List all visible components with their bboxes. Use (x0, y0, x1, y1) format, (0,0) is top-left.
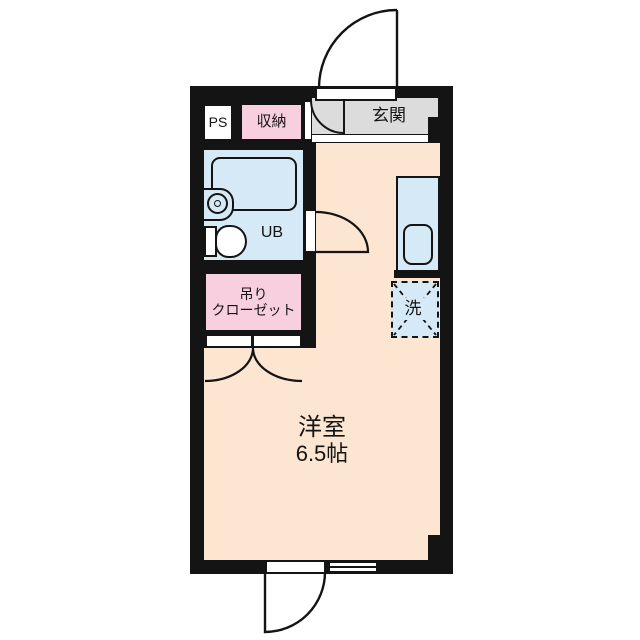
entrance-floor: 玄関 (312, 98, 438, 134)
unit-bath-label: UB (252, 222, 292, 244)
ps-label: PS (209, 114, 228, 130)
counter-step (394, 270, 440, 278)
closet-label-line1: 吊り (240, 286, 268, 302)
room-name: 洋室 (298, 414, 346, 442)
wall-notch-entrance (428, 117, 442, 143)
washbasin-icon (202, 188, 234, 221)
storage-box: 収納 (240, 103, 303, 141)
entrance-step (312, 134, 438, 143)
entrance-door-arc (319, 10, 397, 88)
closet-door-leaf-left (205, 334, 253, 348)
balcony-door-leaf (265, 560, 326, 574)
kitchen-counter (396, 176, 440, 272)
washer-label: 洗 (401, 298, 425, 320)
toilet-bowl-icon (215, 225, 247, 258)
entrance-label: 玄関 (372, 106, 406, 126)
balcony-door-arc (265, 572, 325, 632)
closet-label-line2: クローゼット (212, 302, 296, 318)
closet-door-leaf-right (252, 334, 302, 348)
room-label: 洋室 6.5帖 (242, 408, 402, 472)
unit-bath-floor: UB (204, 150, 303, 260)
kitchen-sink-icon (403, 224, 433, 265)
entrance-door-leaf (315, 87, 397, 101)
floor-plan: PS 収納 玄関 UB 吊り クローゼット (0, 0, 640, 640)
window-symbol (328, 561, 378, 573)
ub-door-leaf (305, 210, 316, 252)
wall-notch-corner (428, 535, 453, 574)
closet-box: 吊り クローゼット (204, 272, 303, 332)
storage-label: 収納 (256, 113, 286, 130)
room-size: 6.5帖 (296, 441, 349, 466)
ps-box: PS (203, 104, 233, 141)
